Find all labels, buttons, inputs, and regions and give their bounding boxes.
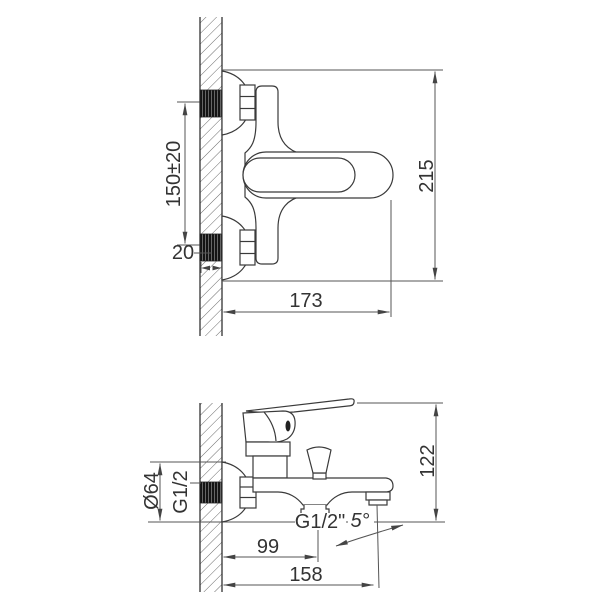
nut-top — [240, 85, 255, 120]
wall-thread-bottom — [200, 234, 222, 261]
aerator-outer — [366, 492, 390, 500]
wall-thread-side — [200, 482, 222, 503]
dim-inlet-centres: 150±20 — [163, 141, 185, 208]
wall-thread-top — [200, 90, 222, 117]
dim-overall-width: 215 — [416, 159, 438, 192]
diverter-stem — [313, 473, 326, 479]
dim-overall-height: 122 — [417, 444, 439, 477]
label-spout-angle: 5° — [350, 510, 369, 532]
body-lower-side — [253, 456, 287, 478]
dim-escutcheon-diameter: Ø64 — [141, 472, 163, 510]
front-view: 215 173 150±20 20 — [163, 17, 443, 336]
diverter-knob — [307, 447, 331, 473]
faucet-dimension-drawing: 215 173 150±20 20 — [0, 0, 600, 600]
dim-shower-outlet-offset: 99 — [257, 536, 279, 558]
aerator-inner — [369, 500, 387, 505]
water-stream-line — [377, 505, 379, 588]
dim-spout-reach: 158 — [289, 564, 322, 586]
dim-wall-thread-length: 20 — [172, 242, 194, 264]
handle-grip-plan — [243, 158, 355, 192]
handle-lever-side — [246, 399, 354, 413]
technical-drawing-page: 215 173 150±20 20 — [0, 0, 600, 600]
wall-hatch-front — [200, 17, 222, 336]
nut-bottom — [240, 230, 255, 265]
dim-projection-depth: 173 — [289, 290, 322, 312]
side-view: Ø64 G1/2 122 99 158 G1/2" 5° — [141, 399, 445, 592]
label-inlet-thread: G1/2 — [170, 470, 192, 513]
handle-screw-detail — [286, 421, 291, 432]
label-shower-outlet-thread: G1/2" — [295, 511, 345, 533]
body-upper-side — [246, 442, 290, 456]
